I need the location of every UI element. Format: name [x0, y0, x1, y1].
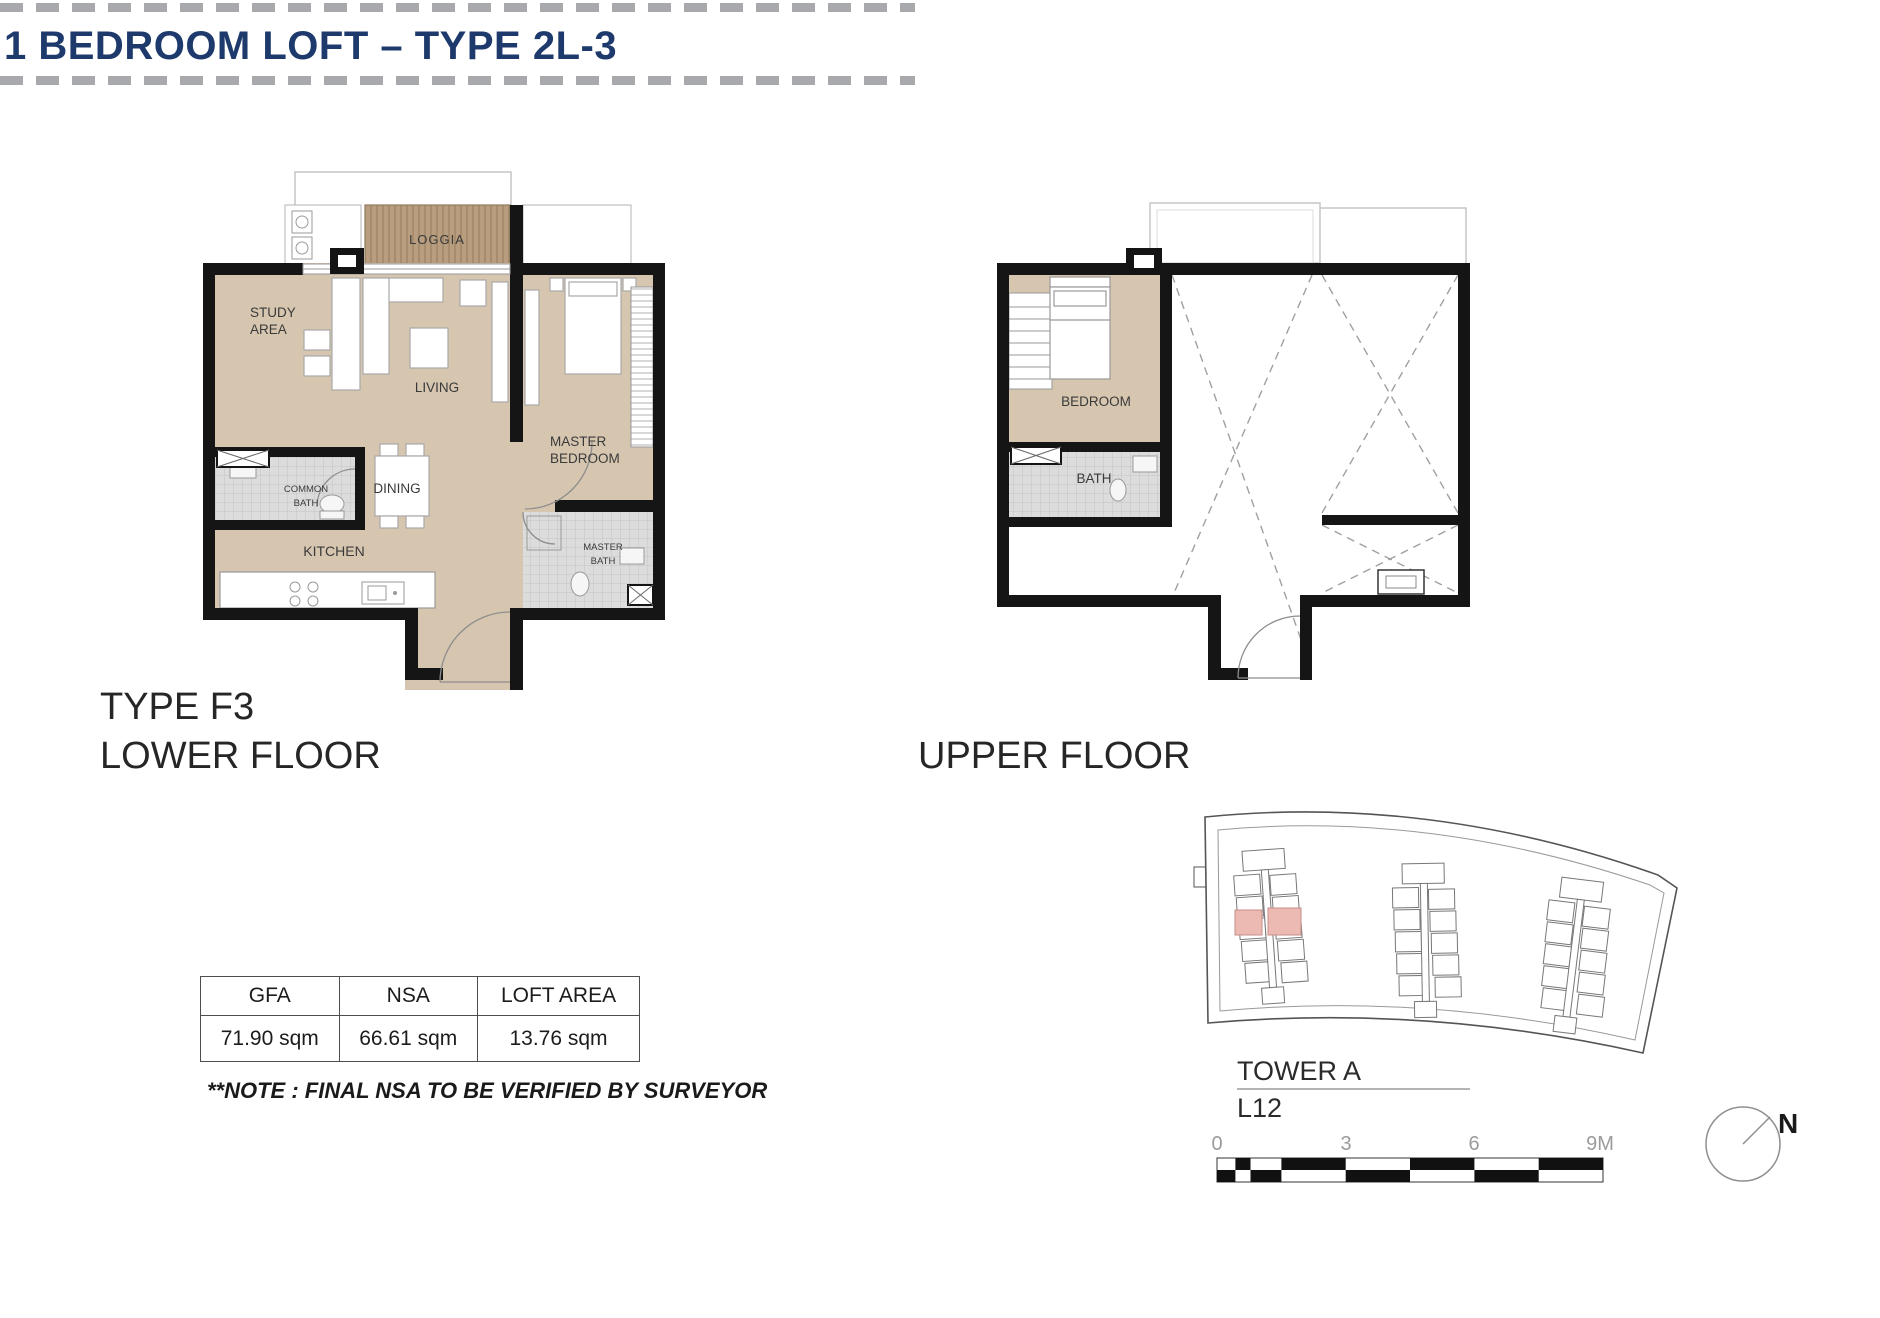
room-label-kitchen: KITCHEN [303, 543, 364, 559]
highlighted-unit-left [1235, 910, 1262, 935]
access-panel [1378, 570, 1424, 594]
upper-balcony-outline [1150, 203, 1466, 263]
room-label-study-1: STUDY [250, 305, 296, 320]
room-label-master-bedroom-2: BEDROOM [550, 451, 620, 466]
area-table-header-nsa: NSA [339, 977, 478, 1016]
wardrobe [631, 287, 653, 447]
lower-floor-label: LOWER FLOOR [100, 735, 381, 777]
stairs [1009, 293, 1052, 389]
upper-floor-plan: BEDROOM BATH [950, 160, 1510, 700]
room-label-upper-bedroom: BEDROOM [1061, 394, 1131, 409]
header-dash-top [0, 3, 915, 12]
upper-shaft-symbol [1011, 447, 1061, 464]
site-edge-tab [1194, 867, 1206, 887]
kitchen-counter [220, 572, 435, 608]
lower-type-label: TYPE F3 [100, 686, 254, 728]
page-title: 1 BEDROOM LOFT – TYPE 2L-3 [4, 24, 617, 69]
scale-tick-3: 3 [1340, 1133, 1351, 1155]
room-label-study-2: AREA [250, 322, 287, 337]
north-label: N [1778, 1108, 1798, 1139]
upper-bed [1050, 277, 1110, 379]
room-label-master-bath-2: BATH [591, 556, 616, 567]
site-key-plan: TOWER A L12 0 3 6 9M N [1180, 790, 1860, 1270]
room-label-loggia: LOGGIA [409, 232, 465, 247]
shaft-symbol [217, 450, 269, 467]
room-label-common-bath-1: COMMON [284, 484, 328, 495]
terrace-ledge [523, 205, 631, 264]
area-table-value-loft: 13.76 sqm [478, 1016, 640, 1062]
area-table-value-row: 71.90 sqm 66.61 sqm 13.76 sqm [201, 1016, 640, 1062]
lower-floor-title: TYPE F3LOWER FLOOR [100, 683, 381, 781]
tower-label: TOWER A [1237, 1056, 1361, 1086]
level-label: L12 [1237, 1093, 1282, 1123]
room-label-living: LIVING [415, 380, 459, 395]
shaft-symbol-2 [628, 585, 653, 605]
scale-tick-9m: 9M [1586, 1133, 1614, 1155]
lower-floor-plan: LOGGIA STUDY AREA LIVING MASTER BEDROOM … [80, 160, 680, 700]
room-label-common-bath-2: BATH [294, 498, 319, 509]
scale-tick-6: 6 [1468, 1133, 1479, 1155]
area-table-value-gfa: 71.90 sqm [201, 1016, 340, 1062]
highlighted-unit-right [1268, 908, 1301, 935]
area-table-header-row: GFA NSA LOFT AREA [201, 977, 640, 1016]
room-label-master-bath-1: MASTER [583, 542, 623, 553]
area-table-header-gfa: GFA [201, 977, 340, 1016]
north-arrow-icon: N [1706, 1107, 1798, 1181]
brochure-page: 1 BEDROOM LOFT – TYPE 2L-3 [0, 0, 1880, 1318]
loggia-door-block-inner [338, 255, 356, 267]
surveyor-note: **NOTE : FINAL NSA TO BE VERIFIED BY SUR… [207, 1078, 767, 1104]
scale-bar: 0 3 6 9M [1211, 1133, 1613, 1182]
area-table: GFA NSA LOFT AREA 71.90 sqm 66.61 sqm 13… [200, 976, 640, 1062]
area-table-header-loft: LOFT AREA [478, 977, 640, 1016]
room-label-dining: DINING [373, 481, 420, 496]
room-label-upper-bath: BATH [1076, 471, 1111, 486]
header-dash-bottom [0, 76, 915, 85]
room-label-master-bedroom-1: MASTER [550, 434, 607, 449]
upper-door-block-inner [1134, 255, 1154, 268]
upper-floor-title: UPPER FLOOR [918, 732, 1190, 781]
scale-tick-0: 0 [1211, 1133, 1222, 1155]
area-table-value-nsa: 66.61 sqm [339, 1016, 478, 1062]
